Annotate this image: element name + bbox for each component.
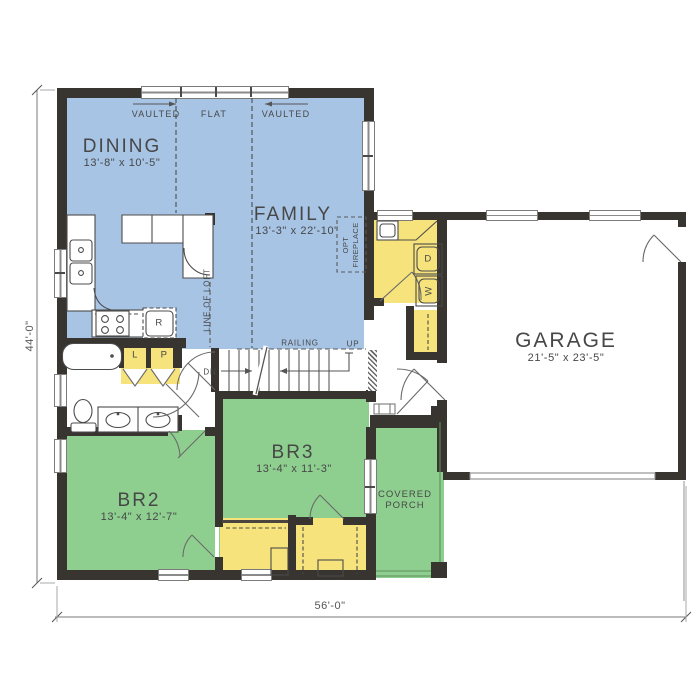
toilet-bowl (74, 400, 92, 423)
dryer-label: D (424, 254, 431, 265)
stair-break-line (256, 347, 267, 394)
refrigerator-label: R (155, 318, 162, 329)
covered-porch-label: COVERED PORCH (378, 489, 432, 511)
br2-label: BR2 (118, 490, 161, 512)
height-dimension: 44'-0" (24, 320, 36, 351)
dining-label: DINING (83, 136, 162, 158)
vaulted-arrow-right (265, 102, 308, 107)
vaulted-right-label: VAULTED (262, 109, 311, 119)
door-garage-entry (401, 369, 445, 400)
stove (96, 311, 129, 336)
family-dims: 13'-3" x 22'-10" (255, 225, 338, 237)
br3-dims: 13'-4" x 11'-3" (256, 463, 332, 475)
kitchen-peninsula (122, 215, 213, 278)
railing-label: RAILING (281, 339, 319, 348)
washer-label: W (424, 286, 435, 295)
door-pantry-bifold (151, 369, 175, 386)
width-dimension: 56'-0" (314, 600, 345, 612)
porch-edge-bottom (376, 571, 431, 576)
garage-door-panel (470, 473, 655, 479)
walkin-shelf (318, 560, 343, 576)
br2-dims: 13'-4" x 12'-7" (101, 511, 178, 523)
up-label: UP (347, 340, 360, 349)
door-walkin-closet (310, 495, 344, 519)
door-linen-bifold (123, 369, 147, 386)
family-label: FAMILY (254, 204, 332, 226)
door-garage-service (643, 235, 681, 262)
linen-label: L (132, 350, 138, 361)
flat-label: FLAT (201, 109, 227, 119)
floor-plan: DINING 13'-8" x 10'-5" FAMILY 13'-3" x 2… (0, 0, 700, 700)
toilet-tank (71, 423, 96, 432)
dn-label: DN (203, 368, 216, 377)
garage-label: GARAGE (515, 329, 617, 353)
pantry-label: P (161, 350, 168, 361)
dining-dims: 13'-8" x 10'-5" (84, 157, 161, 169)
kitchen-sink-1 (70, 240, 92, 261)
laundry-corner-cabinet (398, 221, 437, 240)
stair-direction-arrows (221, 353, 353, 374)
garage-dims: 21'-5" x 23'-5" (528, 352, 605, 364)
opt-fireplace-label: OPT FIREPLACE (341, 222, 361, 267)
door-br2 (169, 431, 205, 458)
br3-threshold (374, 404, 395, 414)
door-br2-closet (183, 535, 214, 557)
line-of-loft-label: LINE OF LOFT (203, 268, 212, 331)
kitchen-sink-2 (70, 263, 92, 284)
door-laundry (380, 272, 421, 301)
kitchen-corner-counter (94, 288, 121, 311)
vaulted-arrow-left (133, 102, 176, 107)
closet-left-shelf (271, 548, 288, 575)
br3-label: BR3 (272, 442, 315, 464)
vaulted-left-label: VAULTED (132, 109, 181, 119)
